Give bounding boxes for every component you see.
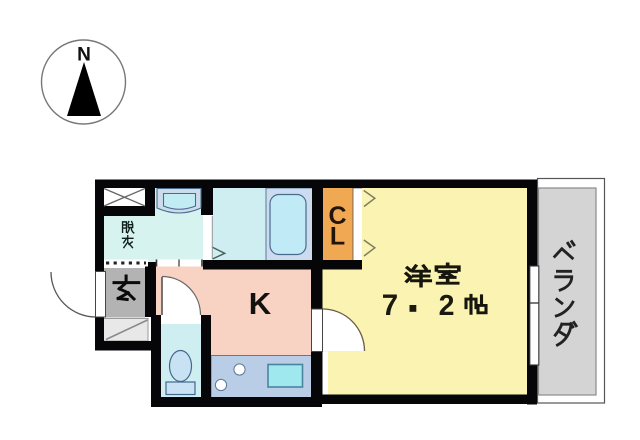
svg-text:2: 2 (439, 290, 455, 322)
svg-text:K: K (249, 286, 272, 321)
svg-text:7: 7 (382, 289, 398, 322)
svg-text:L: L (330, 223, 345, 251)
